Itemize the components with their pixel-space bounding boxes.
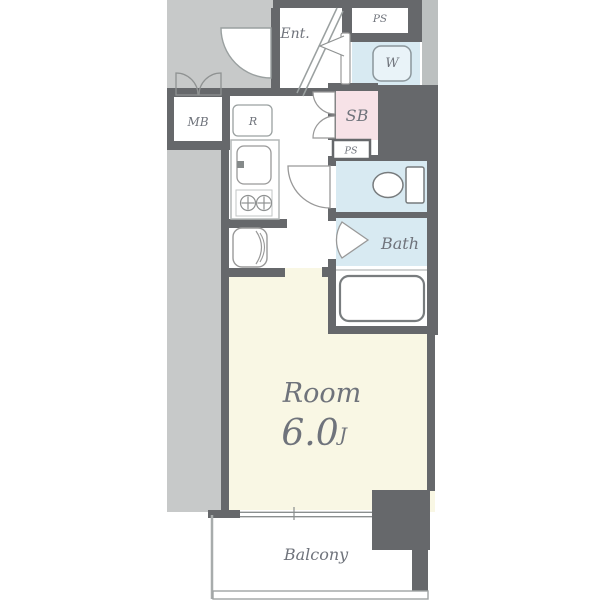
exterior-strip-right bbox=[422, 0, 438, 85]
wall-east-upper bbox=[427, 155, 438, 335]
window-gap bbox=[240, 510, 372, 519]
label-ps-small: PS bbox=[344, 146, 358, 157]
wall-balcony-east bbox=[412, 550, 428, 593]
toilet-bowl bbox=[373, 173, 403, 198]
label-entrance: Ent. bbox=[279, 26, 309, 42]
bathtub bbox=[340, 276, 424, 321]
wall-entrance-west bbox=[271, 8, 280, 88]
floor-plan-image: Ent. PS W MB R SB PS Bath Room 6.0 J Bal… bbox=[0, 0, 600, 600]
pipe-shaft-block bbox=[378, 85, 438, 155]
label-balcony: Balcony bbox=[283, 545, 349, 564]
sink-faucet bbox=[237, 161, 244, 168]
wall-ps-right bbox=[408, 0, 422, 42]
label-ps-top: PS bbox=[372, 13, 387, 25]
structural-pillar bbox=[372, 490, 430, 550]
wall-tub-south bbox=[328, 326, 438, 334]
wall-tub-west bbox=[328, 266, 336, 334]
label-shoe-box: SB bbox=[346, 106, 369, 125]
balcony-rail-south bbox=[213, 591, 428, 599]
wall-hall-east-3 bbox=[328, 208, 336, 221]
floor-plan-svg: Ent. PS W MB R SB PS Bath Room 6.0 J Bal… bbox=[0, 0, 600, 600]
corridor-area-left bbox=[167, 96, 222, 512]
toilet-tank bbox=[406, 167, 424, 203]
label-room-area-value: 6.0 bbox=[281, 413, 338, 454]
wall-room-east bbox=[427, 334, 435, 491]
label-washer: W bbox=[385, 56, 400, 71]
wall-vanity-north bbox=[221, 219, 287, 228]
wall-room-north-left bbox=[221, 268, 285, 277]
label-refrigerator: R bbox=[248, 115, 257, 128]
wall-kitchen-north bbox=[222, 88, 328, 96]
label-bath: Bath bbox=[380, 234, 419, 253]
wall-shoebox-top bbox=[328, 83, 378, 91]
wall-toilet-bath bbox=[335, 212, 435, 218]
wall-west bbox=[221, 88, 229, 512]
label-room: Room bbox=[282, 378, 361, 409]
label-meter-box: MB bbox=[186, 115, 208, 129]
